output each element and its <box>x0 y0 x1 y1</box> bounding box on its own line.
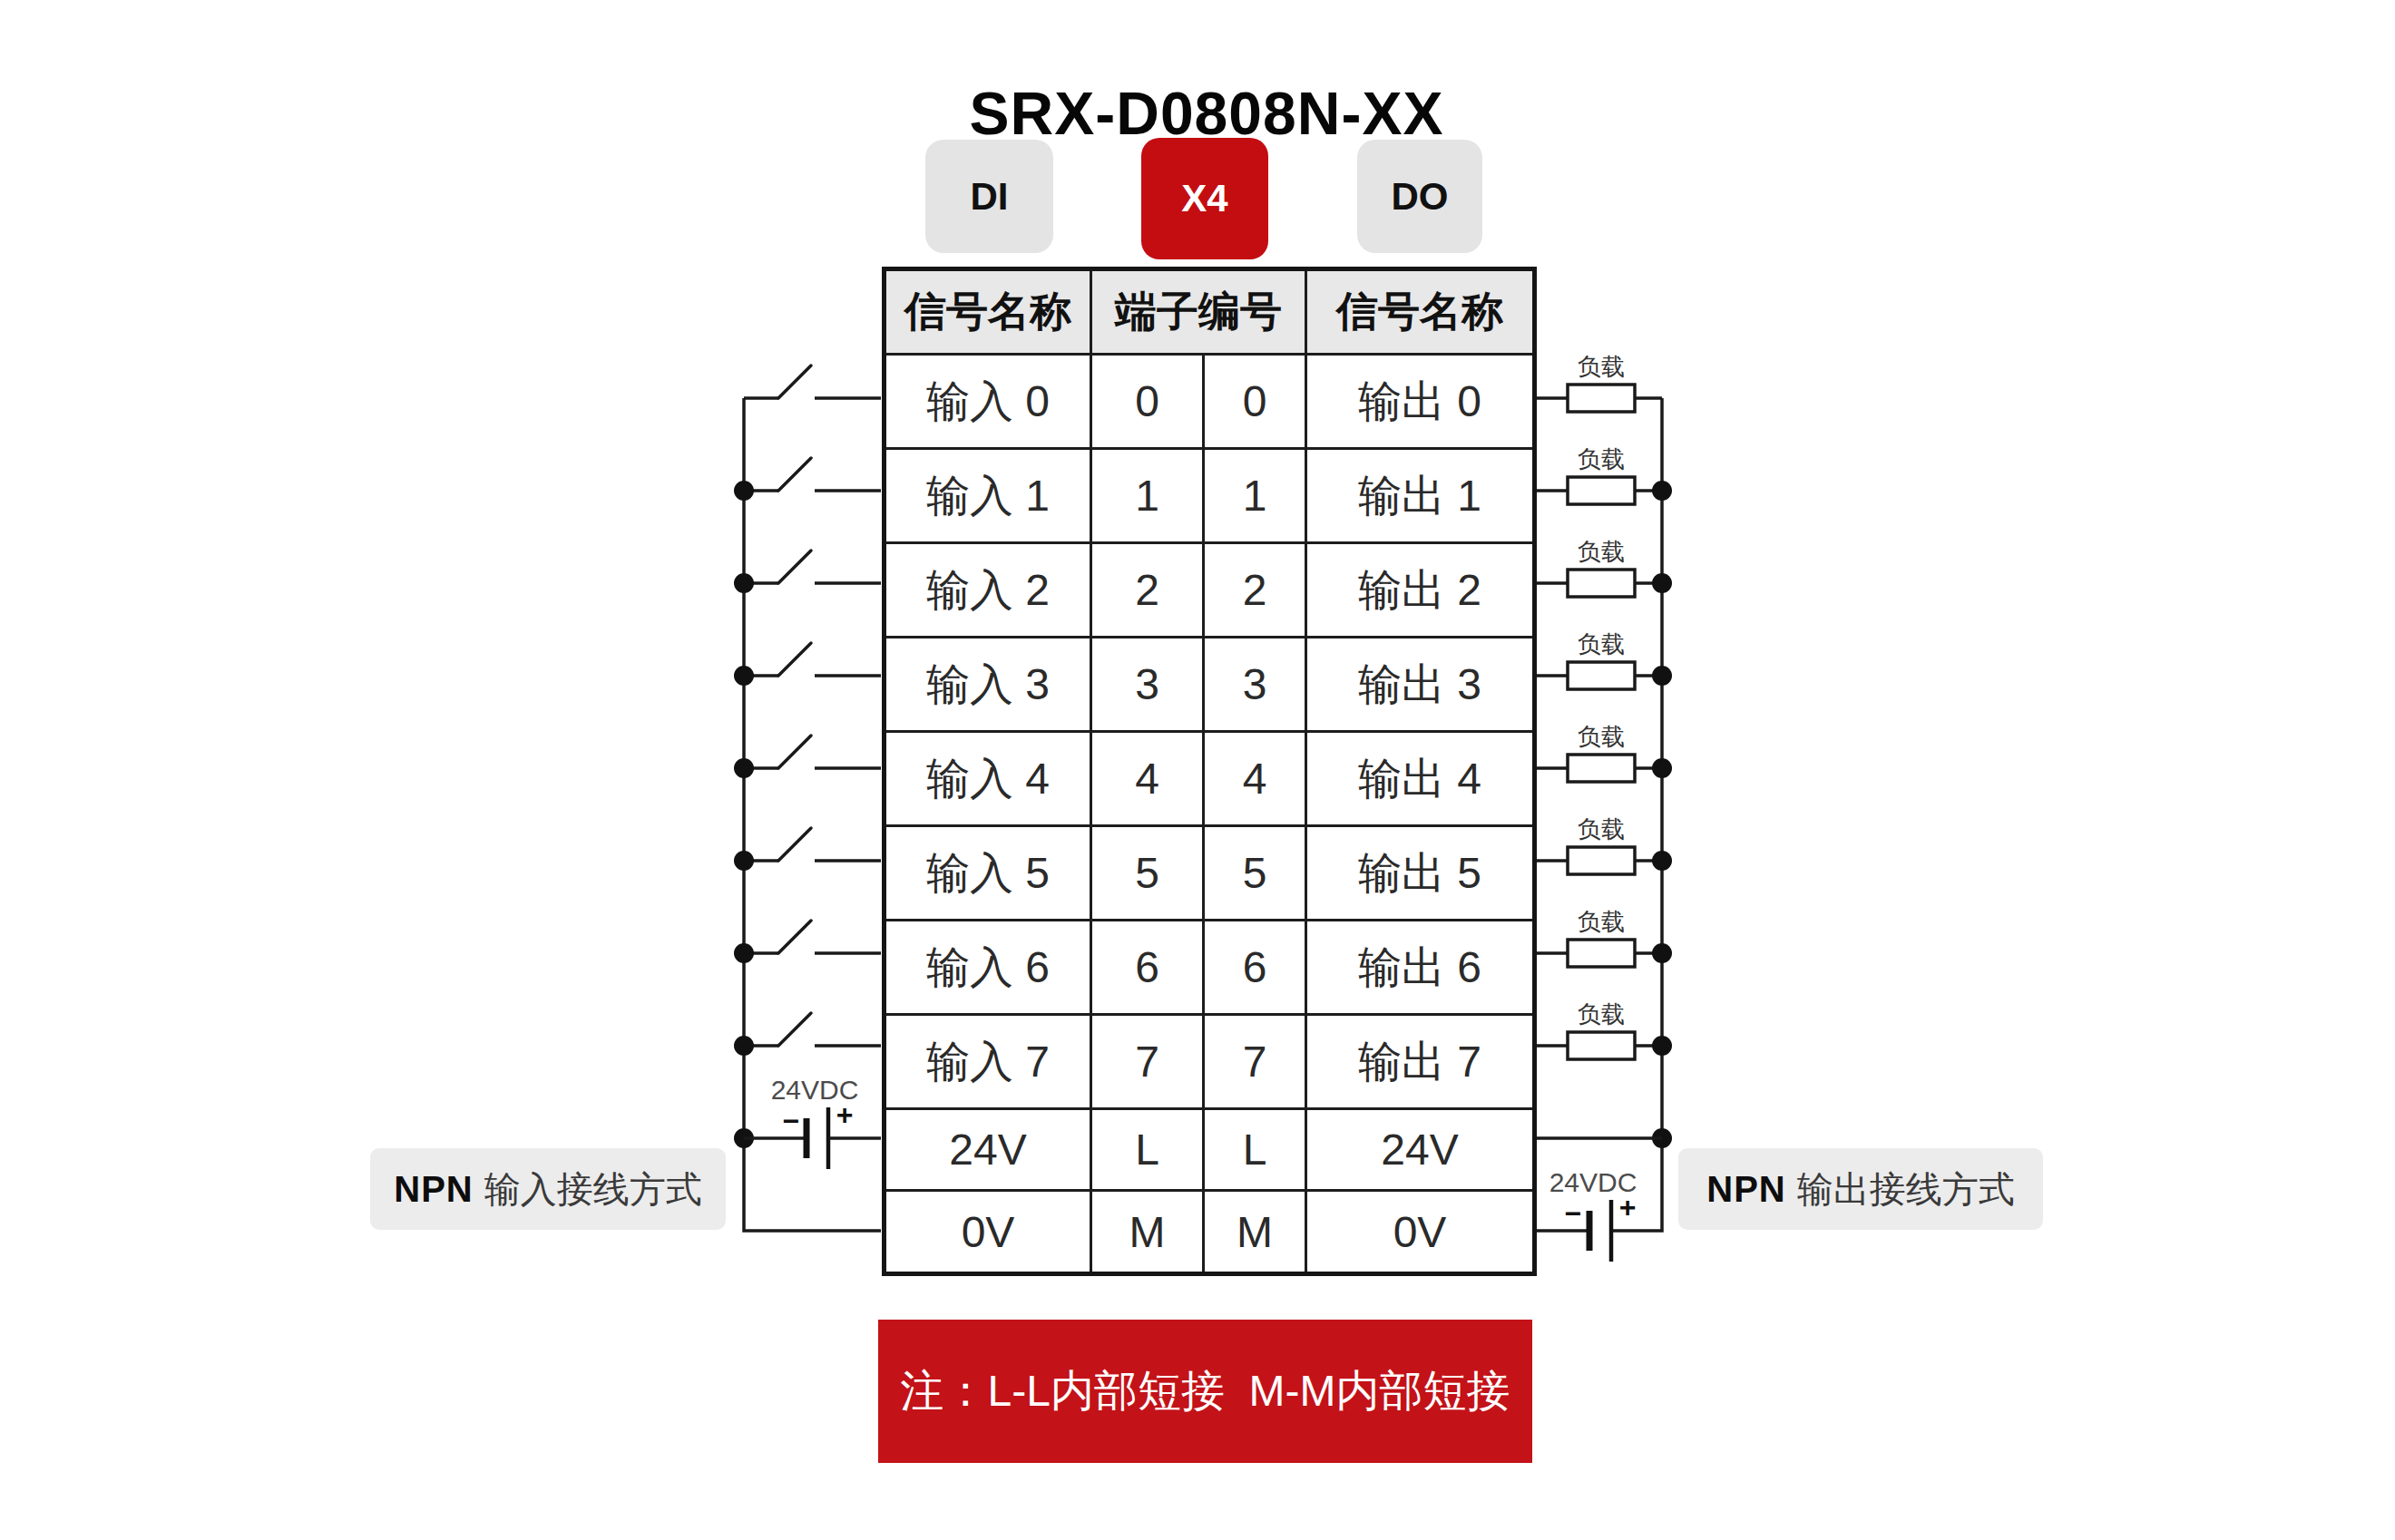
terminal-right-cell: M <box>1204 1191 1306 1274</box>
output-signal-cell: 24V <box>1306 1109 1535 1191</box>
table-row: 输入 6 6 6 输出 6 <box>885 921 1535 1015</box>
switch-icon <box>744 1013 881 1046</box>
header-signal-left: 信号名称 <box>885 269 1091 355</box>
table-row: 0V M M 0V <box>885 1191 1535 1274</box>
load-resistor-icon <box>1532 445 1662 504</box>
left-input-circuit: 24VDC − + <box>734 366 881 1231</box>
header-signal-right: 信号名称 <box>1306 269 1535 355</box>
table-row: 输入 1 1 1 输出 1 <box>885 449 1535 543</box>
terminal-table: 信号名称 端子编号 信号名称 输入 0 0 0 输出 0 输入 1 1 1 输出… <box>882 267 1537 1276</box>
caption-text: 输出接线方式 <box>1797 1165 2015 1214</box>
switch-icon <box>744 921 881 953</box>
header-terminal-number: 端子编号 <box>1091 269 1306 355</box>
wiring-diagram-page: SRX-D0808N-XX DI X4 DO 负载 <box>0 0 2395 1540</box>
table-header-row: 信号名称 端子编号 信号名称 <box>885 269 1535 355</box>
caption-input-wiring: NPN 输入接线方式 <box>370 1148 726 1230</box>
output-signal-cell: 输出 0 <box>1306 355 1535 449</box>
terminal-right-cell: 7 <box>1204 1015 1306 1109</box>
terminal-left-cell: 3 <box>1091 638 1204 732</box>
load-resistor-icon <box>1532 723 1662 782</box>
switch-icon <box>744 366 881 398</box>
output-signal-cell: 输出 4 <box>1306 732 1535 826</box>
table-row: 输入 2 2 2 输出 2 <box>885 543 1535 638</box>
load-resistor-icon <box>1532 908 1662 967</box>
output-signal-cell: 输出 6 <box>1306 921 1535 1015</box>
terminal-right-cell: 1 <box>1204 449 1306 543</box>
switch-icon <box>744 643 881 676</box>
terminal-left-cell: 2 <box>1091 543 1204 638</box>
terminal-right-cell: 0 <box>1204 355 1306 449</box>
output-signal-cell: 输出 5 <box>1306 826 1535 921</box>
output-signal-cell: 输出 7 <box>1306 1015 1535 1109</box>
terminal-left-cell: 6 <box>1091 921 1204 1015</box>
terminal-right-cell: 3 <box>1204 638 1306 732</box>
load-resistor-icon <box>1532 353 1662 412</box>
battery-icon <box>744 1107 881 1169</box>
left-bus-wire <box>744 398 881 1231</box>
load-resistor-icon <box>1532 815 1662 874</box>
input-signal-cell: 输入 4 <box>885 732 1091 826</box>
table-row: 输入 3 3 3 输出 3 <box>885 638 1535 732</box>
input-signal-cell: 0V <box>885 1191 1091 1274</box>
load-resistor-icon <box>1532 538 1662 597</box>
terminal-left-cell: 4 <box>1091 732 1204 826</box>
input-signal-cell: 输入 0 <box>885 355 1091 449</box>
caption-output-wiring: NPN 输出接线方式 <box>1678 1148 2043 1230</box>
input-signal-cell: 输入 3 <box>885 638 1091 732</box>
input-signal-cell: 输入 6 <box>885 921 1091 1015</box>
terminal-right-cell: L <box>1204 1109 1306 1191</box>
table-row: 24V L L 24V <box>885 1109 1535 1191</box>
terminal-left-cell: 5 <box>1091 826 1204 921</box>
input-signal-cell: 24V <box>885 1109 1091 1191</box>
terminal-left-cell: M <box>1091 1191 1204 1274</box>
plus-sign: + <box>836 1098 854 1131</box>
switch-icon <box>744 736 881 768</box>
input-signal-cell: 输入 2 <box>885 543 1091 638</box>
terminal-right-cell: 2 <box>1204 543 1306 638</box>
terminal-right-cell: 4 <box>1204 732 1306 826</box>
minus-sign: − <box>783 1105 800 1137</box>
terminal-left-cell: 1 <box>1091 449 1204 543</box>
output-signal-cell: 0V <box>1306 1191 1535 1274</box>
output-signal-cell: 输出 1 <box>1306 449 1535 543</box>
output-signal-cell: 输出 2 <box>1306 543 1535 638</box>
switch-icon <box>744 458 881 491</box>
input-signal-cell: 输入 7 <box>885 1015 1091 1109</box>
terminal-right-cell: 6 <box>1204 921 1306 1015</box>
caption-text: 输入接线方式 <box>484 1165 702 1214</box>
right-output-circuit: 24VDC − + <box>1532 353 1672 1262</box>
minus-sign: − <box>1565 1197 1582 1230</box>
right-bus-wire <box>1611 398 1662 1231</box>
table-row: 输入 5 5 5 输出 5 <box>885 826 1535 921</box>
terminal-right-cell: 5 <box>1204 826 1306 921</box>
load-resistor-icon <box>1532 630 1662 689</box>
output-signal-cell: 输出 3 <box>1306 638 1535 732</box>
plus-sign: + <box>1619 1191 1637 1223</box>
table-row: 输入 7 7 7 输出 7 <box>885 1015 1535 1109</box>
table-row: 输入 4 4 4 输出 4 <box>885 732 1535 826</box>
note-banner: 注：L-L内部短接 M-M内部短接 <box>878 1320 1532 1463</box>
input-signal-cell: 输入 5 <box>885 826 1091 921</box>
switch-icon <box>744 828 881 861</box>
input-signal-cell: 输入 1 <box>885 449 1091 543</box>
switch-icon <box>744 551 881 583</box>
terminal-left-cell: L <box>1091 1109 1204 1191</box>
terminal-left-cell: 0 <box>1091 355 1204 449</box>
load-resistor-icon <box>1532 1000 1662 1059</box>
caption-bold-label: NPN <box>394 1169 473 1210</box>
table-row: 输入 0 0 0 输出 0 <box>885 355 1535 449</box>
caption-bold-label: NPN <box>1706 1169 1785 1210</box>
terminal-left-cell: 7 <box>1091 1015 1204 1109</box>
